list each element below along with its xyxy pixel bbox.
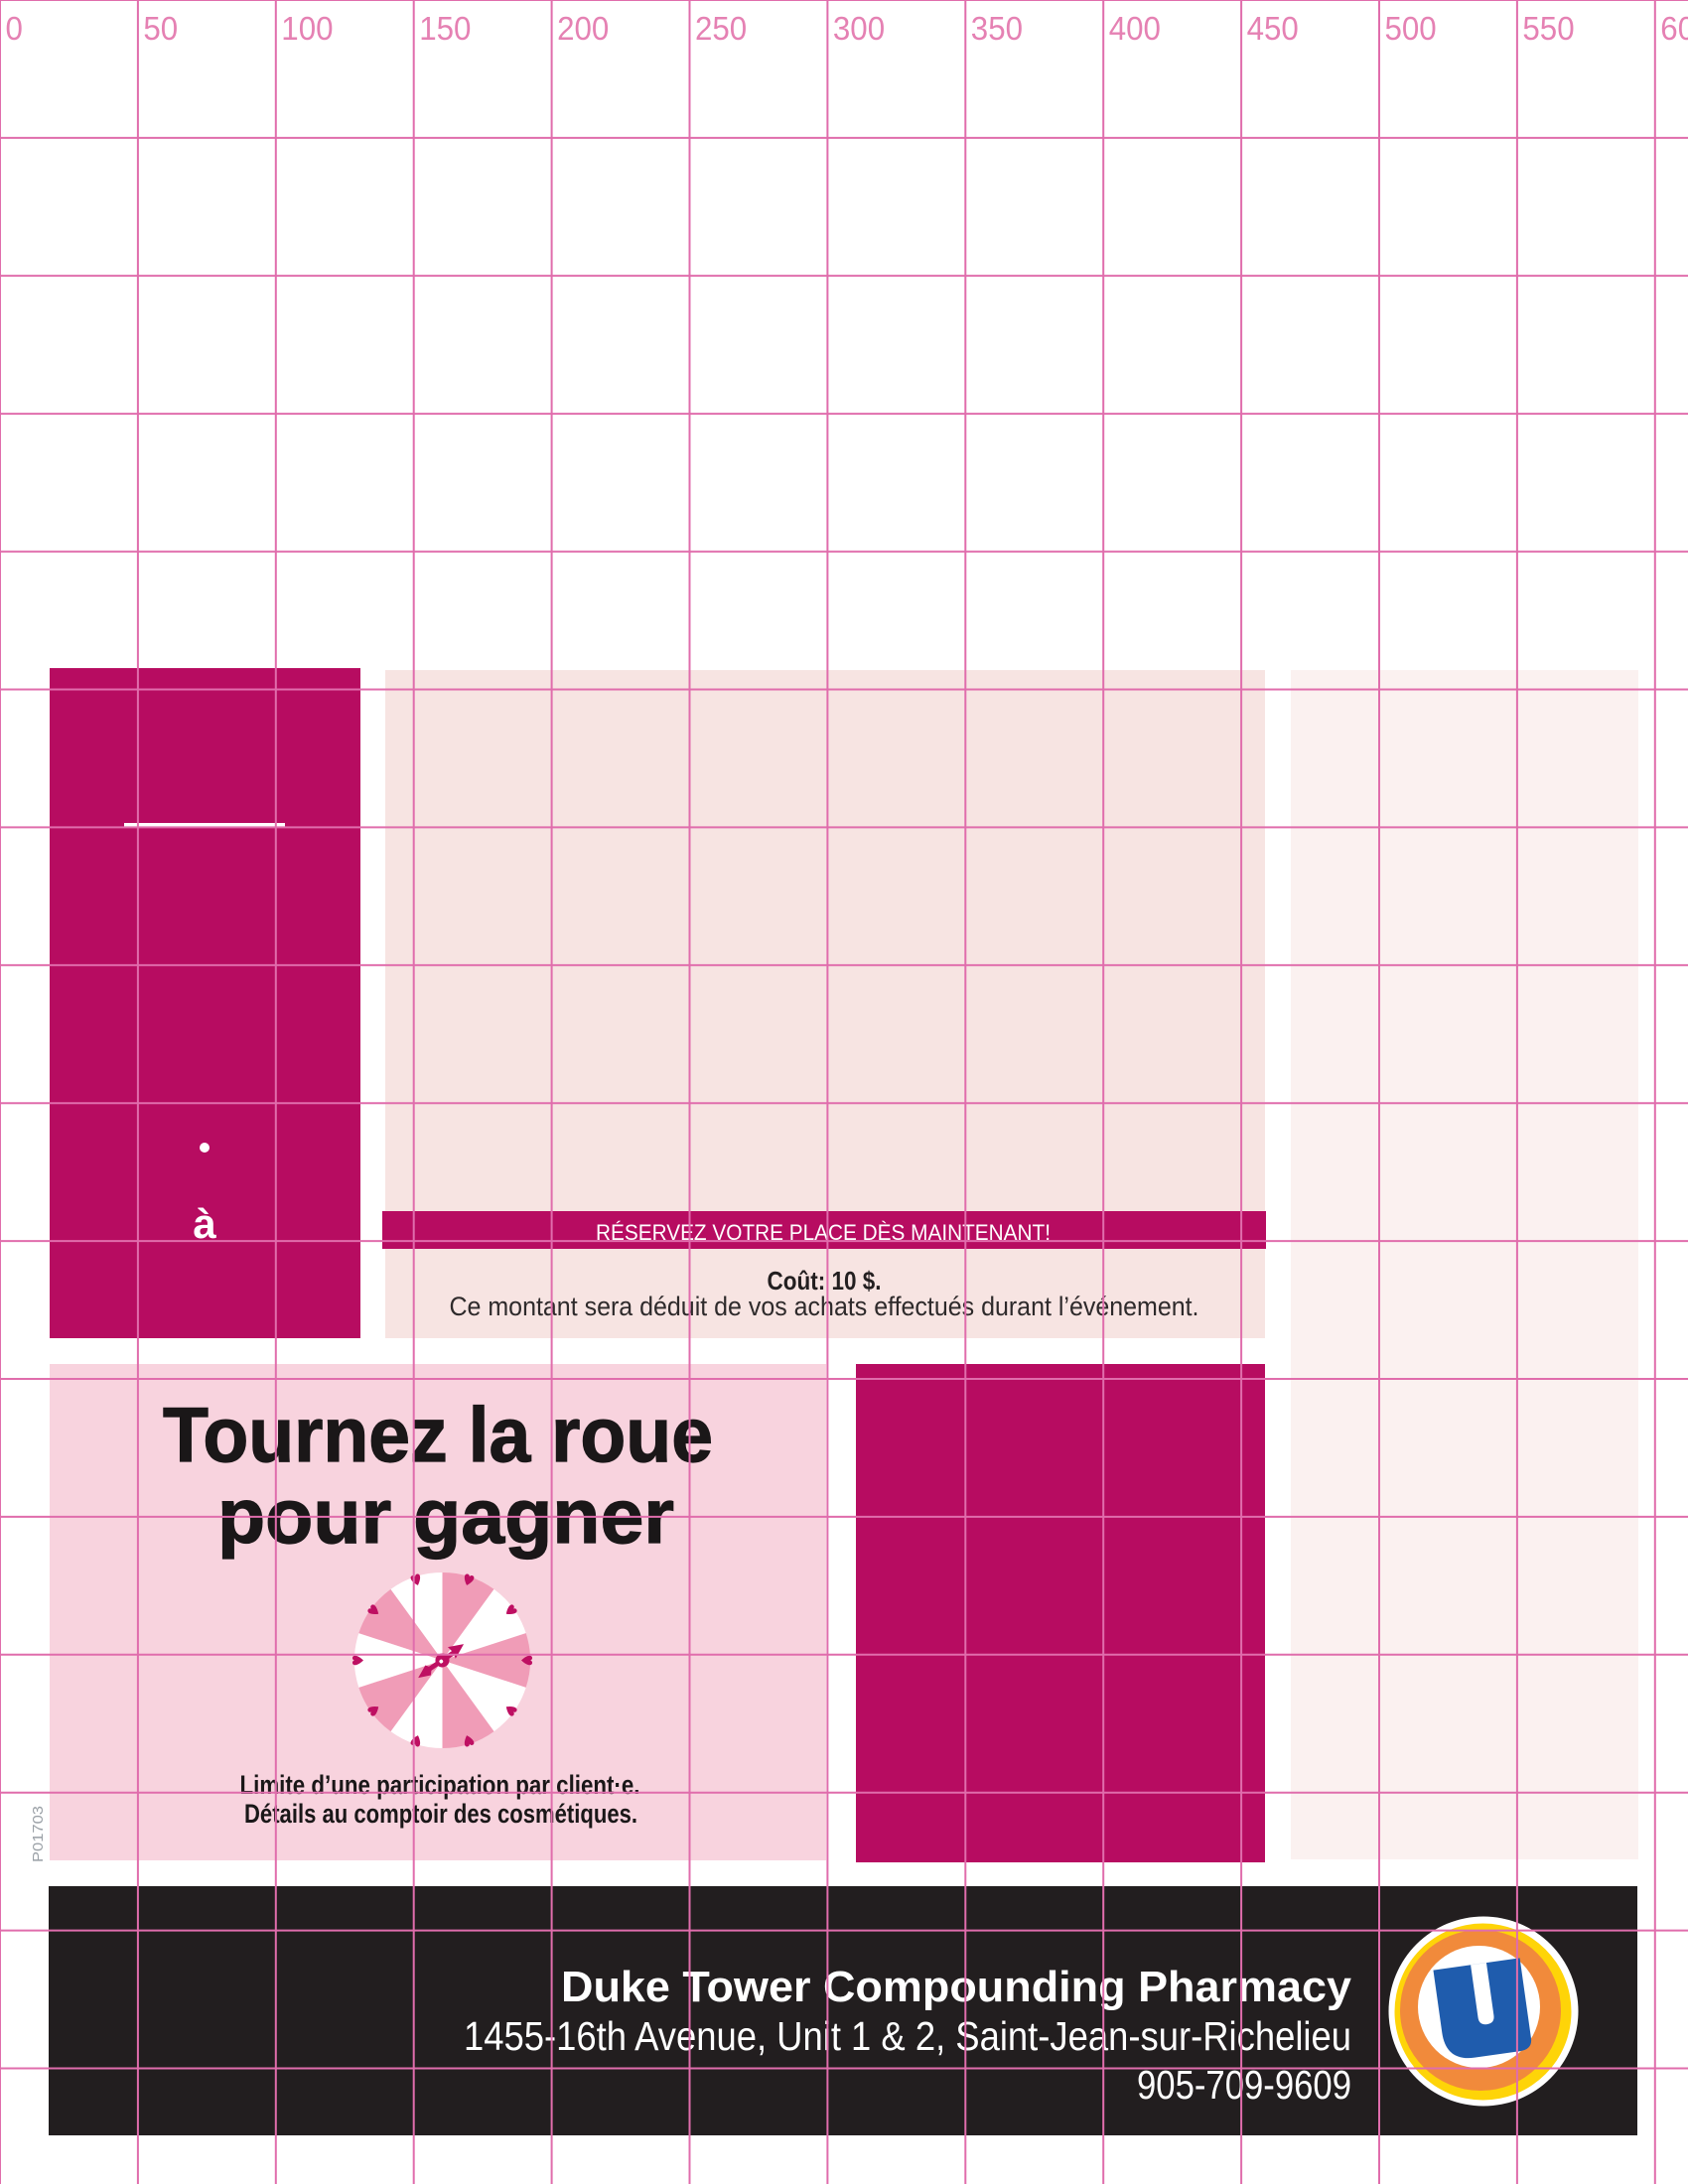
svg-text:550: 550 <box>1522 10 1574 47</box>
svg-text:400: 400 <box>1109 10 1161 47</box>
svg-text:150: 150 <box>419 10 471 47</box>
svg-text:250: 250 <box>695 10 747 47</box>
svg-text:600: 600 <box>1660 10 1688 47</box>
svg-text:200: 200 <box>557 10 609 47</box>
svg-text:450: 450 <box>1247 10 1299 47</box>
svg-text:0: 0 <box>6 10 23 47</box>
svg-text:350: 350 <box>971 10 1023 47</box>
svg-text:100: 100 <box>281 10 333 47</box>
svg-text:50: 50 <box>143 10 178 47</box>
svg-text:300: 300 <box>833 10 885 47</box>
svg-text:500: 500 <box>1385 10 1437 47</box>
